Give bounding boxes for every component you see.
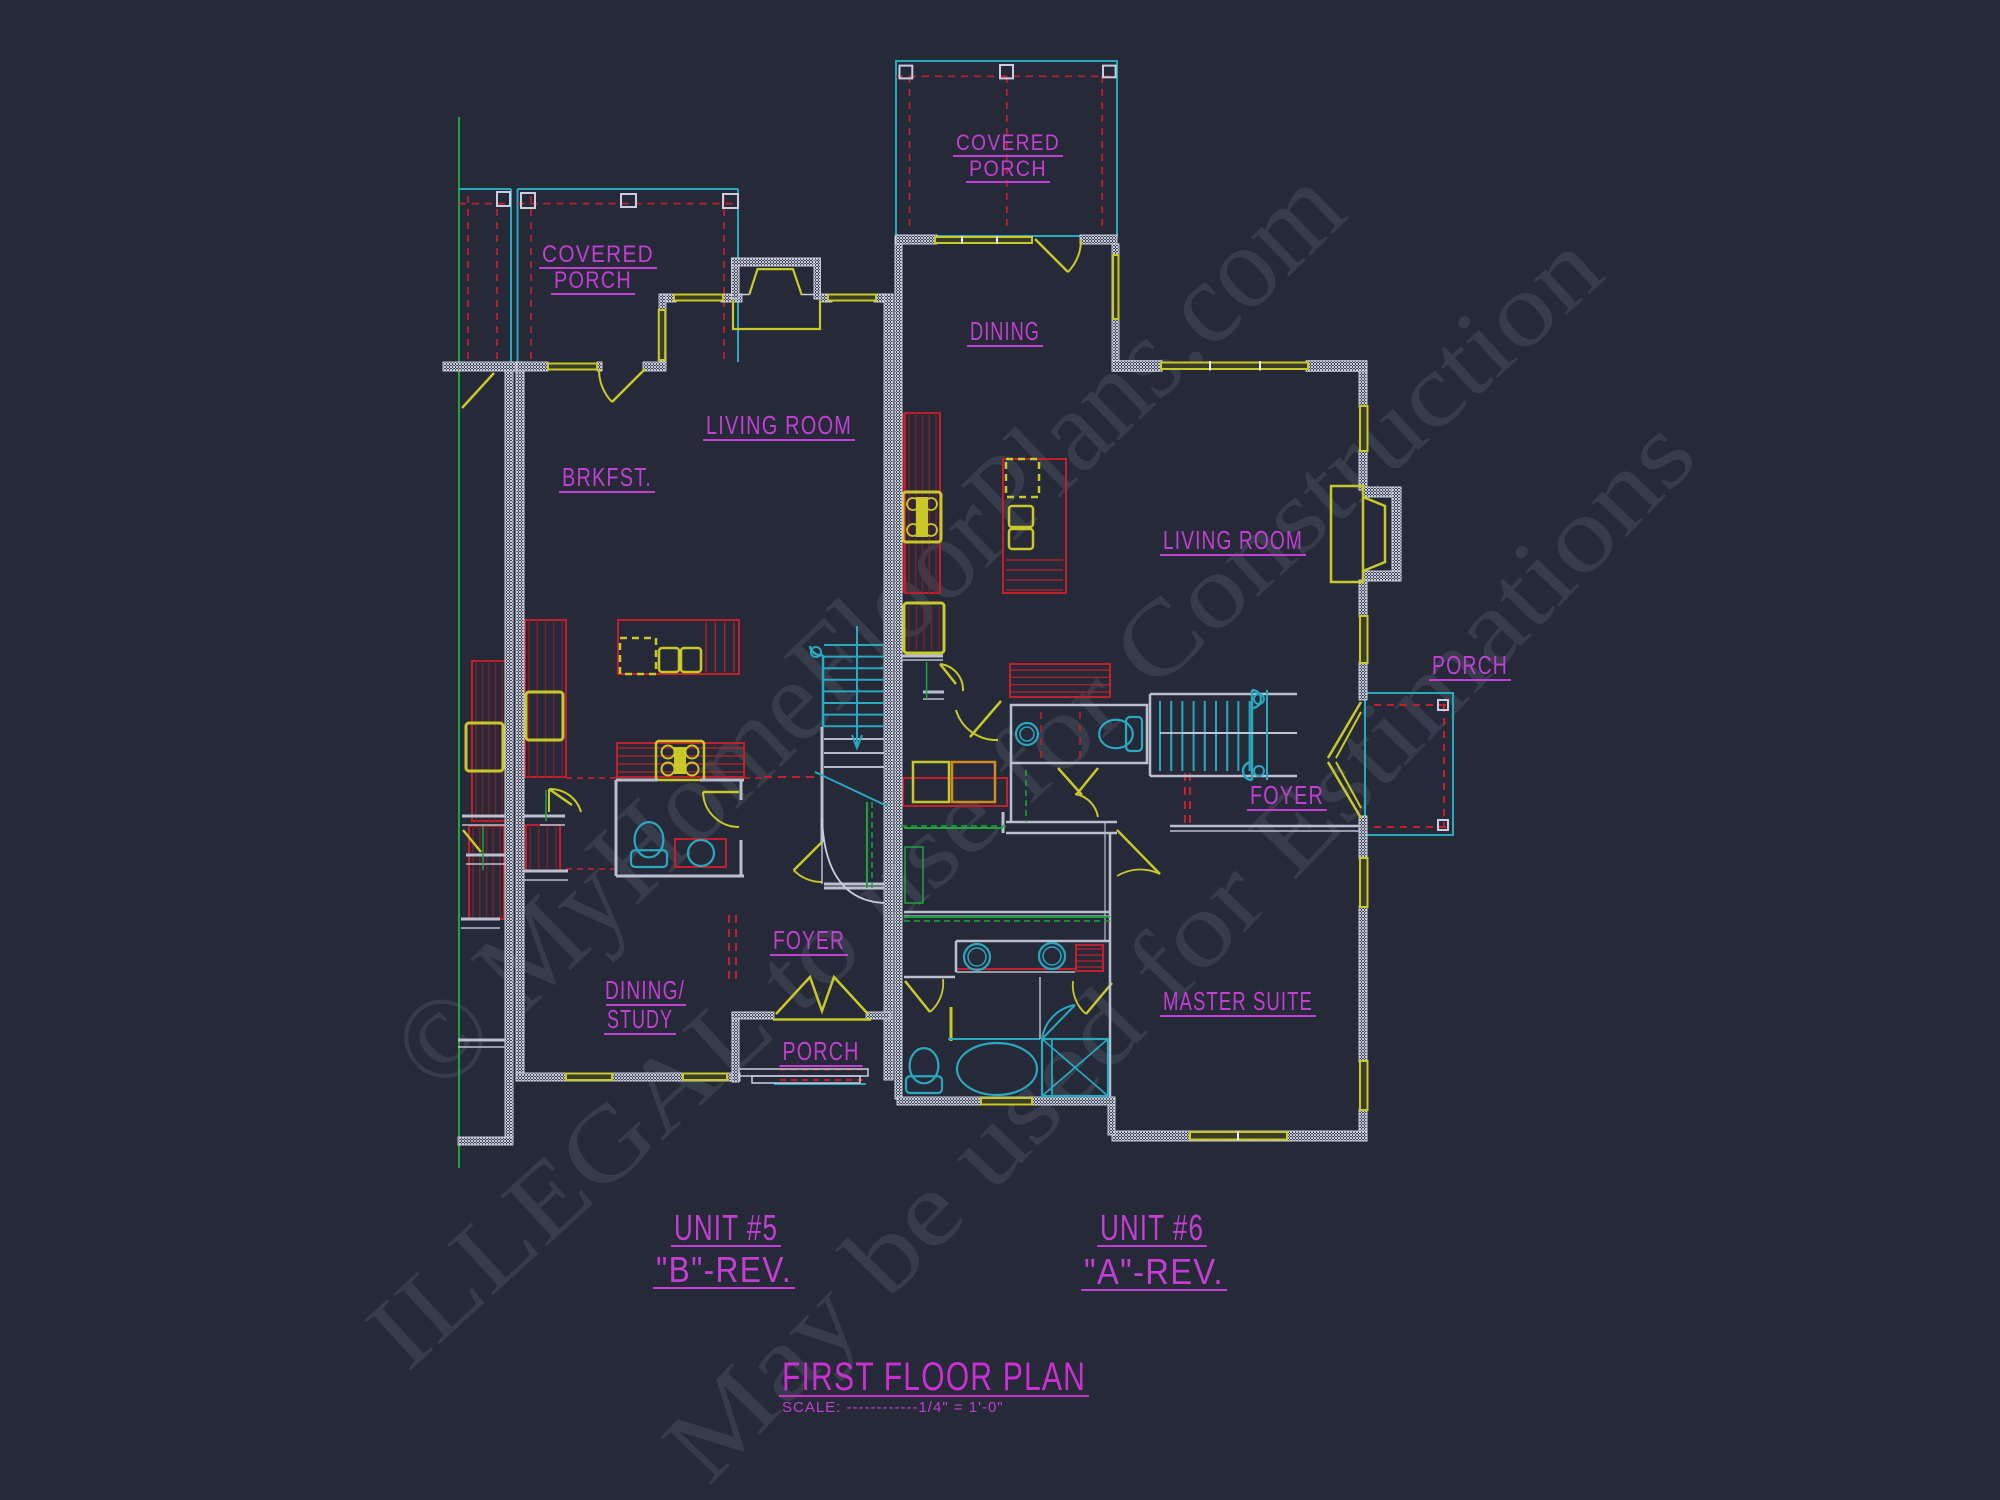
svg-text:STUDY: STUDY: [607, 1004, 673, 1034]
svg-text:FIRST FLOOR PLAN: FIRST FLOOR PLAN: [782, 1355, 1086, 1399]
svg-text:MASTER SUITE: MASTER SUITE: [1163, 986, 1313, 1016]
svg-text:COVERED: COVERED: [956, 130, 1060, 155]
svg-text:UNIT #5: UNIT #5: [674, 1207, 778, 1248]
svg-text:DINING: DINING: [970, 316, 1040, 346]
svg-text:PORCH: PORCH: [783, 1036, 860, 1066]
svg-text:LIVING ROOM: LIVING ROOM: [1163, 525, 1303, 555]
svg-text:BRKFST.: BRKFST.: [562, 462, 652, 492]
svg-text:"B"-REV.: "B"-REV.: [656, 1249, 792, 1290]
svg-text:"A"-REV.: "A"-REV.: [1084, 1251, 1224, 1292]
svg-text:UNIT #6: UNIT #6: [1100, 1207, 1204, 1248]
svg-text:COVERED: COVERED: [542, 241, 654, 268]
svg-text:PORCH: PORCH: [554, 267, 632, 294]
svg-text:PORCH: PORCH: [1432, 650, 1508, 680]
svg-text:FOYER: FOYER: [773, 925, 845, 955]
svg-text:SCALE: ------------1/4" = 1'-0: SCALE: ------------1/4" = 1'-0": [782, 1399, 1004, 1416]
svg-text:FOYER: FOYER: [1250, 780, 1324, 810]
svg-text:DINING/: DINING/: [605, 975, 685, 1005]
svg-text:LIVING ROOM: LIVING ROOM: [706, 410, 852, 440]
svg-text:PORCH: PORCH: [969, 156, 1047, 181]
